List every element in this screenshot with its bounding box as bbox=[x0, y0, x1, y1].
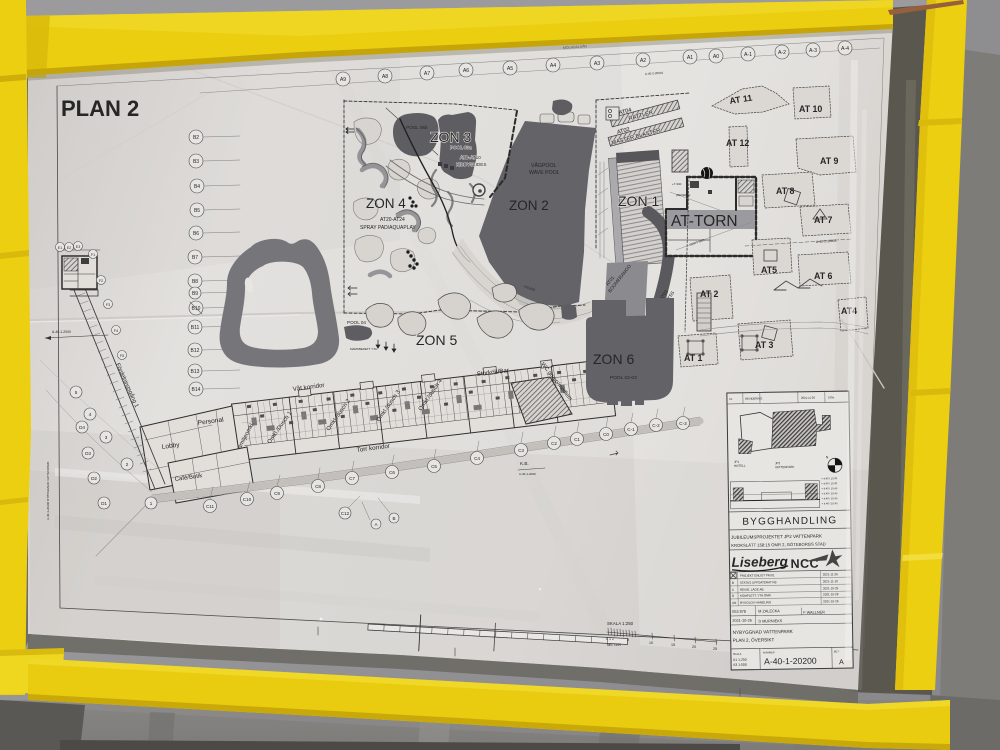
svg-text:+ 4.40 / 10.45: + 4.40 / 10.45 bbox=[822, 501, 839, 505]
svg-text:F3: F3 bbox=[106, 303, 110, 307]
svg-text:A2: A2 bbox=[640, 58, 646, 64]
svg-text:VATTENPARK: VATTENPARK bbox=[775, 465, 794, 469]
svg-text:+ 4.40 / 10.45: + 4.40 / 10.45 bbox=[821, 486, 838, 490]
svg-text:WAVE POOL: WAVE POOL bbox=[529, 170, 560, 176]
svg-text:B6: B6 bbox=[193, 231, 199, 237]
svg-text:A-40-1-2000: A-40-1-2000 bbox=[52, 330, 71, 334]
svg-text:POOL 05b: POOL 05b bbox=[406, 125, 428, 130]
svg-text:A-2: A-2 bbox=[778, 50, 786, 56]
svg-text:ATB-AT10: ATB-AT10 bbox=[460, 155, 481, 160]
svg-text:A: A bbox=[839, 659, 844, 666]
svg-text:B4: B4 bbox=[194, 184, 200, 190]
svg-text:2021-10-28: 2021-10-28 bbox=[823, 592, 839, 596]
svg-text:AT 8: AT 8 bbox=[776, 186, 795, 196]
svg-text:2021-11-10: 2021-11-10 bbox=[823, 579, 839, 583]
svg-text:XL: XL bbox=[729, 397, 733, 401]
svg-text:A4: A4 bbox=[550, 63, 556, 69]
svg-text:C-3: C-3 bbox=[679, 421, 687, 426]
svg-text:AT 2: AT 2 bbox=[700, 289, 719, 299]
svg-text:E1: E1 bbox=[58, 246, 62, 250]
svg-text:A7: A7 bbox=[424, 71, 430, 77]
svg-text:A: A bbox=[732, 574, 734, 578]
svg-text:ZON 1: ZON 1 bbox=[618, 193, 659, 209]
svg-text:C11: C11 bbox=[206, 504, 215, 509]
svg-text:D MURNIEKS: D MURNIEKS bbox=[758, 619, 782, 623]
svg-text:SPRAY PAD/AQUAPLAY: SPRAY PAD/AQUAPLAY bbox=[360, 225, 416, 231]
svg-text:F1: F1 bbox=[91, 253, 95, 257]
svg-text:3: 3 bbox=[105, 435, 108, 440]
svg-text:2: 2 bbox=[126, 462, 129, 467]
svg-text:VÅGPOOL: VÅGPOOL bbox=[531, 162, 556, 169]
svg-text:C12: C12 bbox=[341, 511, 350, 516]
svg-text:C5: C5 bbox=[431, 464, 437, 469]
svg-text:BYGGHANDLING: BYGGHANDLING bbox=[742, 515, 837, 527]
svg-text:2021-11-26: 2021-11-26 bbox=[823, 572, 839, 576]
svg-text:F5: F5 bbox=[120, 354, 124, 358]
svg-text:A-3: A-3 bbox=[809, 48, 817, 54]
svg-text:ZON 6: ZON 6 bbox=[593, 351, 634, 367]
svg-text:A3 1:500: A3 1:500 bbox=[733, 663, 747, 667]
svg-text:METER: METER bbox=[607, 642, 621, 647]
svg-text:+ 4.40 / 10.90: + 4.40 / 10.90 bbox=[821, 481, 838, 485]
svg-text:C7: C7 bbox=[349, 476, 355, 481]
svg-text:BYGGLOV HANDLING: BYGGLOV HANDLING bbox=[740, 600, 772, 604]
svg-text:+ 4.40 / 10.45: + 4.40 / 10.45 bbox=[821, 496, 838, 500]
svg-text:AT 7: AT 7 bbox=[814, 215, 833, 225]
svg-text:AT 10: AT 10 bbox=[799, 104, 822, 114]
svg-text:B: B bbox=[732, 581, 734, 585]
svg-text:C9: C9 bbox=[274, 491, 280, 496]
svg-text:F WALLNER: F WALLNER bbox=[803, 610, 825, 614]
svg-text:C8: C8 bbox=[315, 484, 321, 489]
svg-text:E2: E2 bbox=[67, 246, 71, 250]
svg-text:C-1: C-1 bbox=[627, 427, 635, 432]
svg-text:B13: B13 bbox=[191, 369, 200, 375]
svg-text:AT-TORN: AT-TORN bbox=[671, 213, 738, 230]
svg-text:HOTELL: HOTELL bbox=[734, 464, 746, 468]
svg-text:C-2: C-2 bbox=[652, 423, 660, 428]
svg-text:A-1: A-1 bbox=[744, 52, 752, 58]
svg-text:PROJEKT ENLIGT PM 01: PROJEKT ENLIGT PM 01 bbox=[740, 573, 775, 578]
svg-text:A-40-1-20200: A-40-1-20200 bbox=[764, 656, 817, 667]
svg-text:A9: A9 bbox=[340, 77, 346, 83]
svg-text:2021-10-26: 2021-10-26 bbox=[732, 619, 751, 623]
svg-text:POOL 04: POOL 04 bbox=[347, 320, 366, 325]
svg-text:D2: D2 bbox=[91, 476, 97, 481]
svg-text:POOL 03a: POOL 03a bbox=[450, 145, 472, 150]
svg-text:+ 4.40 / 10.45: + 4.40 / 10.45 bbox=[821, 491, 838, 495]
svg-text:D1: D1 bbox=[101, 501, 107, 506]
svg-text:5: 5 bbox=[75, 390, 78, 395]
svg-text:KOMPLETT. YTA OMR: KOMPLETT. YTA OMR bbox=[740, 593, 772, 597]
svg-text:SKALA: SKALA bbox=[733, 652, 742, 656]
svg-text:A-4: A-4 bbox=[841, 46, 849, 52]
svg-text:NUMMER: NUMMER bbox=[763, 650, 775, 654]
svg-text:2021-10-26: 2021-10-26 bbox=[823, 599, 839, 603]
svg-text:E3: E3 bbox=[76, 245, 80, 249]
svg-text:4: 4 bbox=[89, 412, 92, 417]
svg-text:A5: A5 bbox=[507, 66, 513, 72]
svg-text:PLAN 2, ÖVERSIKT: PLAN 2, ÖVERSIKT bbox=[733, 636, 775, 643]
svg-text:C2: C2 bbox=[551, 441, 557, 446]
svg-text:B3: B3 bbox=[193, 159, 199, 165]
svg-text:F2: F2 bbox=[99, 279, 103, 283]
svg-text:B14: B14 bbox=[192, 387, 201, 393]
svg-text:D4: D4 bbox=[79, 425, 85, 430]
svg-text:C6: C6 bbox=[389, 470, 395, 475]
svg-text:C0: C0 bbox=[603, 432, 609, 437]
svg-text:A6: A6 bbox=[463, 68, 469, 74]
svg-text:F4: F4 bbox=[114, 329, 118, 333]
svg-text:C3: C3 bbox=[518, 448, 524, 453]
svg-text:C4: C4 bbox=[474, 456, 480, 461]
svg-text:A8: A8 bbox=[382, 74, 388, 80]
svg-text:A3: A3 bbox=[594, 61, 600, 67]
svg-text:+7.340: +7.340 bbox=[672, 182, 682, 186]
svg-text:AT 9: AT 9 bbox=[820, 156, 839, 166]
svg-text:REVID. LÄGE AB: REVID. LÄGE AB bbox=[740, 587, 764, 591]
svg-text:10: 10 bbox=[649, 641, 653, 645]
svg-text:AT 12: AT 12 bbox=[726, 138, 749, 148]
svg-text:100a: 100a bbox=[828, 395, 835, 399]
svg-text:AT5: AT5 bbox=[761, 265, 777, 275]
svg-text:25: 25 bbox=[713, 647, 717, 651]
svg-text:B12: B12 bbox=[191, 348, 200, 354]
svg-text:A1 1:250: A1 1:250 bbox=[733, 658, 747, 662]
svg-text:B8: B8 bbox=[192, 279, 198, 285]
svg-text:B7: B7 bbox=[192, 255, 198, 261]
svg-text:C10: C10 bbox=[243, 497, 252, 502]
svg-text:AN: AN bbox=[732, 601, 736, 605]
svg-text:AT20-AT24: AT20-AT24 bbox=[380, 217, 405, 223]
svg-text:053 878: 053 878 bbox=[732, 610, 746, 614]
svg-text:AT 1: AT 1 bbox=[684, 353, 703, 363]
svg-text:REVIDERING: REVIDERING bbox=[745, 396, 762, 400]
svg-text:ZON 4: ZON 4 bbox=[366, 196, 406, 211]
svg-text:AT 3: AT 3 bbox=[755, 340, 774, 350]
svg-text:2021-11-26: 2021-11-26 bbox=[801, 396, 816, 400]
svg-text:C1: C1 bbox=[574, 437, 580, 442]
svg-text:M ZALECKA: M ZALECKA bbox=[758, 609, 780, 613]
svg-text:A0: A0 bbox=[713, 54, 719, 60]
svg-text:KIDDYSLIDES: KIDDYSLIDES bbox=[456, 162, 486, 167]
svg-text:B2: B2 bbox=[193, 135, 199, 141]
svg-text:A-40-1-20200 NYBYGGNAD VATTENP: A-40-1-20200 NYBYGGNAD VATTENPARK bbox=[46, 461, 50, 520]
svg-text:BET: BET bbox=[834, 649, 840, 653]
svg-text:AT 6: AT 6 bbox=[814, 271, 833, 281]
svg-text:ZON 2: ZON 2 bbox=[509, 198, 549, 213]
svg-text:SKALA 1:250: SKALA 1:250 bbox=[607, 621, 634, 626]
svg-text:NYBYGGNAD VATTENPARK: NYBYGGNAD VATTENPARK bbox=[733, 629, 794, 635]
svg-text:STATUS UPPDATERAT KB: STATUS UPPDATERAT KB bbox=[740, 580, 777, 585]
svg-text:B9: B9 bbox=[192, 291, 198, 297]
svg-text:+ 4.40 / 10.90: + 4.40 / 10.90 bbox=[821, 476, 838, 480]
svg-text:A-40-1-2000: A-40-1-2000 bbox=[519, 472, 536, 476]
svg-text:20: 20 bbox=[692, 645, 696, 649]
svg-text:B5: B5 bbox=[194, 208, 200, 214]
svg-text:ZON 5: ZON 5 bbox=[416, 332, 457, 348]
svg-text:POOL 02-03: POOL 02-03 bbox=[610, 375, 637, 381]
svg-text:B11: B11 bbox=[191, 325, 200, 331]
svg-text:5: 5 bbox=[627, 638, 629, 642]
svg-text:A1: A1 bbox=[687, 55, 693, 61]
svg-text:PLAN 2: PLAN 2 bbox=[61, 96, 139, 121]
svg-text:D3: D3 bbox=[85, 451, 91, 456]
svg-text:0 1 2: 0 1 2 bbox=[606, 637, 614, 641]
svg-text:2021-10-29: 2021-10-29 bbox=[823, 586, 839, 590]
svg-text:1: 1 bbox=[150, 501, 153, 506]
svg-text:15: 15 bbox=[671, 643, 675, 647]
svg-text:B: B bbox=[392, 516, 395, 521]
svg-text:K.B.: K.B. bbox=[520, 461, 529, 466]
svg-text:ZON 3: ZON 3 bbox=[430, 129, 471, 145]
svg-text:MARKBERETT YTA: MARKBERETT YTA bbox=[350, 347, 377, 351]
